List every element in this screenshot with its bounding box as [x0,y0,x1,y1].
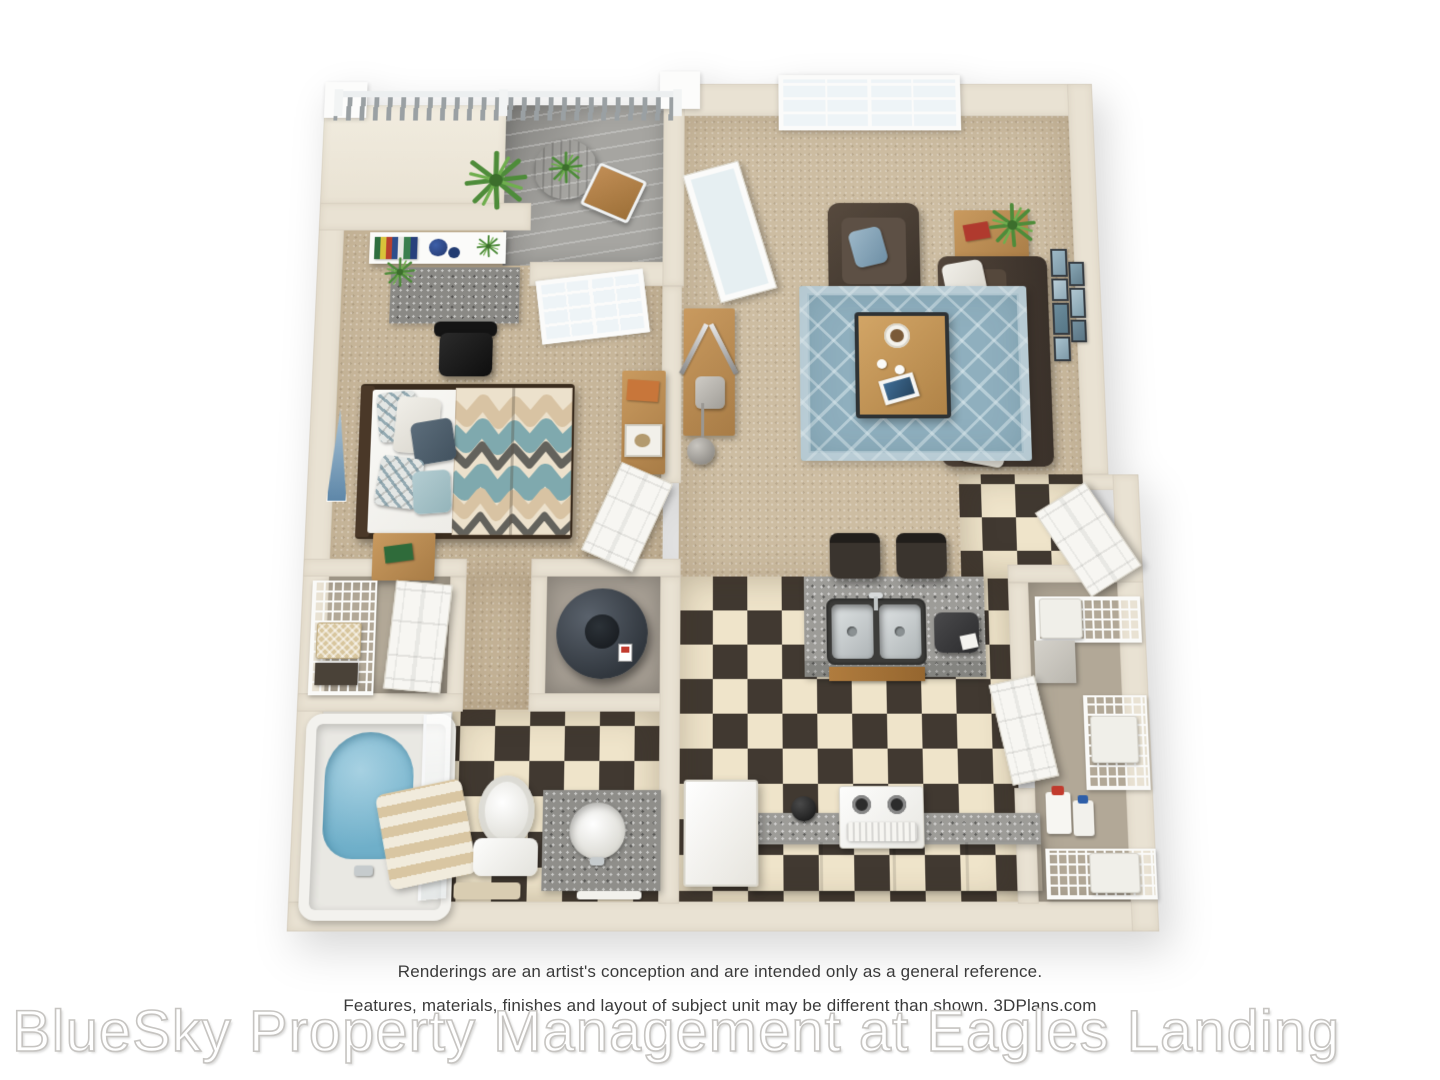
range-vent [846,822,917,841]
balcony-plant [461,148,530,212]
bedroom-nook-window [536,269,650,345]
kettle [791,796,816,821]
railing-post-mid [499,89,508,116]
coffee-table-cup-2 [895,365,905,374]
detergent-bottle-1 [1045,792,1071,834]
pantry-basket-mid [1090,716,1139,763]
towels [375,778,478,891]
passage-waterheater-divider [528,577,547,710]
gallery-frame-3 [1052,303,1070,335]
sink-faucet-neck [874,596,878,610]
floor-lamp-shade [687,438,715,465]
detergent-cap-blue [1078,795,1089,803]
office-chair-seat [439,333,493,377]
pantry-cabinet [1034,641,1076,684]
apartment-floorplan [261,70,1186,949]
toilet-tank [473,838,538,876]
sink-drain-left [847,626,857,636]
hall-passage-floor [463,577,531,710]
sink-basin-left [831,604,873,658]
bathroom-north-wall-west [297,693,463,711]
burner-2 [887,795,906,814]
detergent-bottle-2 [1073,800,1095,836]
coffee-maker [934,612,980,652]
coffee-maker-paper [960,633,979,650]
bed-pillow-lightblue [412,469,452,514]
bathtub-faucet [354,866,373,877]
dresser-tray-decor [634,434,650,447]
kitchen-pantry-wall-upper [1008,583,1032,688]
living-room-window [778,75,961,130]
pantry-basket-top [1039,598,1083,638]
barstool-1 [830,533,881,578]
gallery-frame-2 [1051,279,1068,301]
coffee-table [854,312,951,418]
bath-mat [453,882,520,899]
gallery-frame-5 [1068,262,1085,286]
kitchen-lower-cabinets [750,842,1043,891]
vanity-faucet [590,857,605,865]
bedroom-south-wall-east [531,559,681,577]
closet-storage-box [314,663,358,685]
end-table-plant [986,201,1038,249]
burner-1 [852,795,871,814]
water-heater [556,588,649,679]
disclaimer-line-1: Renderings are an artist's conception an… [0,962,1440,982]
island-wood-base [829,667,925,681]
water-heater-label [619,645,631,661]
floor-plan-image: Renderings are an artist's conception an… [0,0,1440,1080]
sink-basin-right [879,604,922,658]
bathroom-north-wall-east [528,693,680,711]
detergent-cap-red [1051,786,1064,795]
water-heater-label-mark [621,647,629,653]
pantry-basket-bottom [1089,853,1141,893]
armchair [828,203,921,297]
desk-plant [383,256,417,288]
gallery-frame-4 [1053,337,1071,362]
coffee-table-pot [890,329,904,342]
water-heater-cap [585,614,620,648]
gallery-frame-6 [1069,288,1086,318]
console-lamp [695,376,725,408]
coffee-table-magazine [878,372,920,405]
shelf-plant [475,234,501,258]
barstool-2 [896,533,947,578]
railing-post-left [334,89,344,116]
dresser-book-orange [626,379,659,402]
bathroom-kitchen-wall [658,577,680,904]
bed [355,384,575,539]
watermark-text: BlueSky Property Management at Eagles La… [12,998,1340,1065]
magazine-cover [883,377,915,401]
gallery-frame-7 [1070,320,1087,343]
bistro-table-plant [547,150,584,184]
railing-post-right [673,89,682,116]
bed-duvet [452,388,573,535]
range-stove [839,786,925,849]
dresser-tray [624,424,662,457]
closet-basket [315,622,361,658]
vanity-towel-bar [577,891,642,900]
coffee-table-cup-1 [877,359,887,368]
gallery-frame-1 [1050,249,1068,277]
refrigerator [683,780,758,887]
sink-drain-right [895,626,905,636]
double-sink [826,598,927,664]
